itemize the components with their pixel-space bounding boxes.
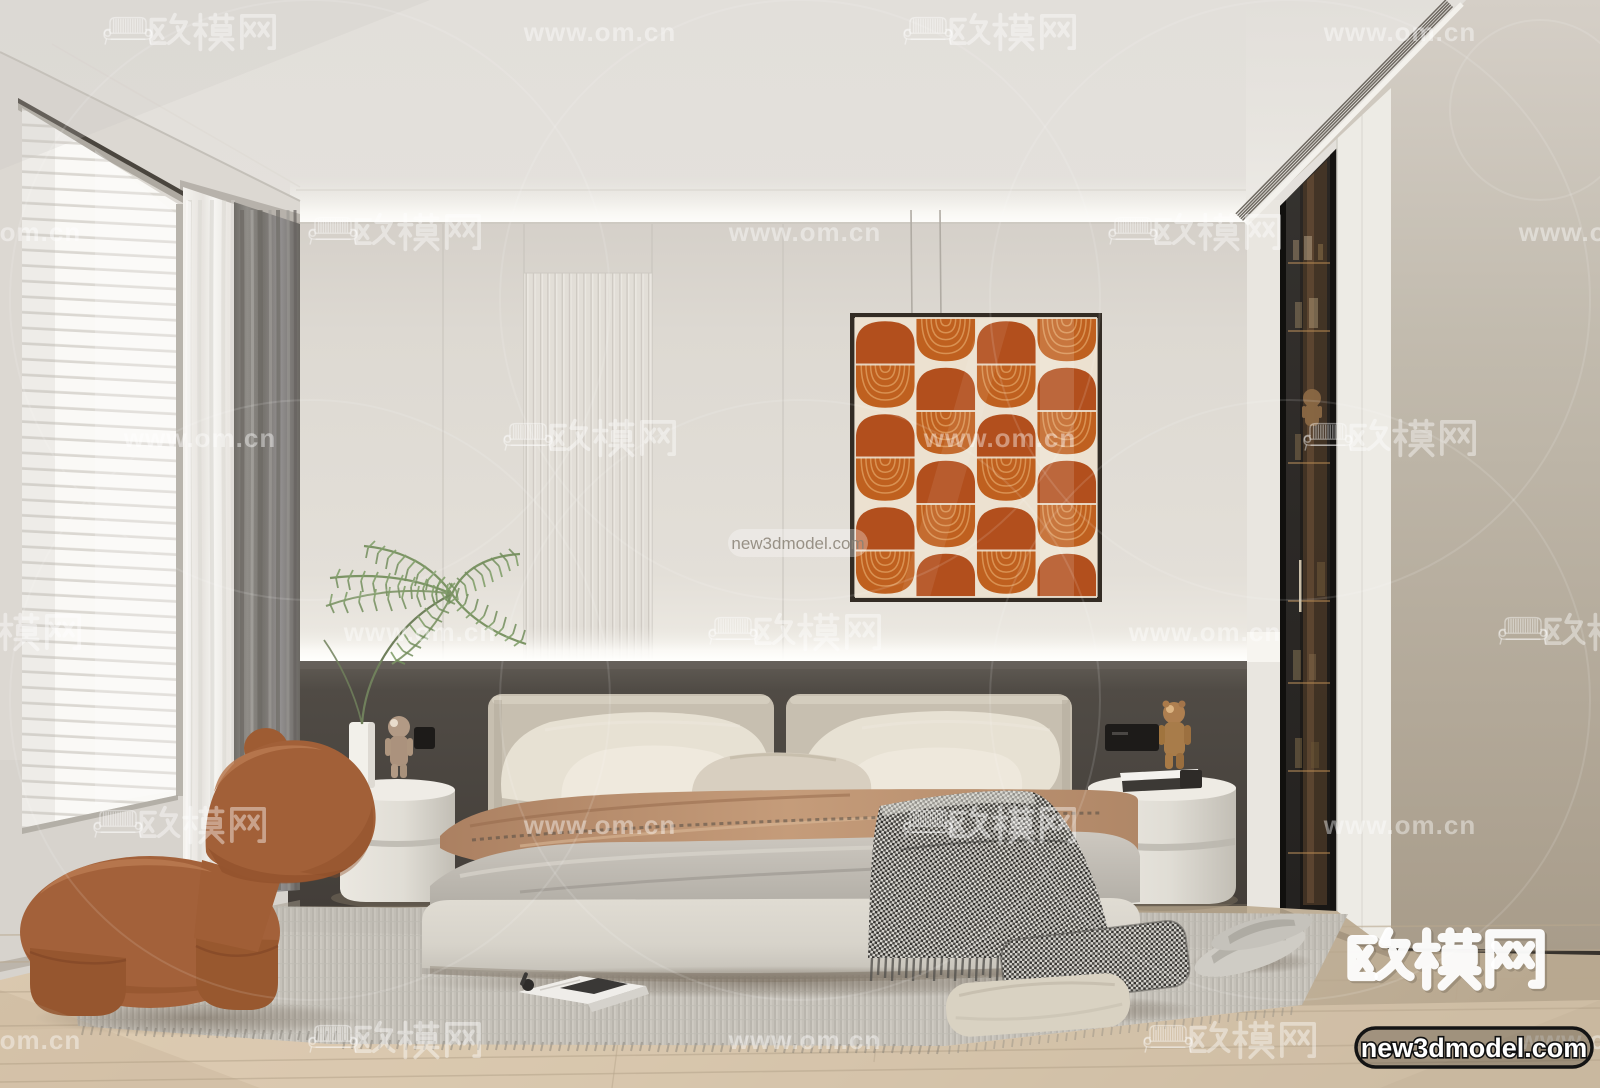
svg-text:www.om.cn: www.om.cn <box>1323 810 1477 840</box>
svg-text:new3dmodel.com: new3dmodel.com <box>731 534 864 553</box>
svg-text:www.om.cn: www.om.cn <box>523 17 677 47</box>
svg-text:www.om.cn: www.om.cn <box>0 217 81 247</box>
svg-text:www.om.cn: www.om.cn <box>728 1025 882 1055</box>
svg-text:www.om.cn: www.om.cn <box>728 217 882 247</box>
svg-text:www.om.cn: www.om.cn <box>343 617 497 647</box>
svg-text:www.om.cn: www.om.cn <box>1128 617 1282 647</box>
svg-text:www.om.cn: www.om.cn <box>523 810 677 840</box>
svg-text:www.om.cn: www.om.cn <box>1518 217 1600 247</box>
svg-text:www.om.cn: www.om.cn <box>0 1025 81 1055</box>
svg-text:new3dmodel.com: new3dmodel.com <box>1361 1033 1588 1063</box>
